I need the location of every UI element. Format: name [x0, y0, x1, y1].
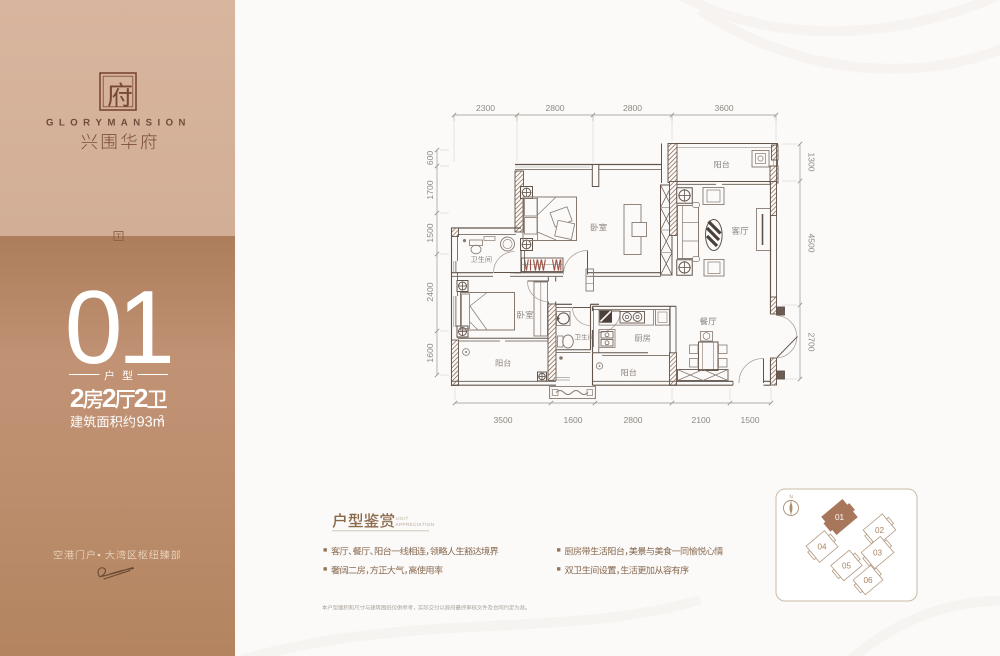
svg-text:3500: 3500	[493, 415, 512, 425]
svg-text:1600: 1600	[563, 415, 582, 425]
svg-text:2700: 2700	[807, 332, 817, 351]
svg-text:1700: 1700	[425, 180, 435, 199]
svg-text:2800: 2800	[545, 103, 564, 113]
svg-text:1500: 1500	[740, 415, 759, 425]
svg-text:05: 05	[842, 562, 852, 571]
svg-text:2800: 2800	[623, 415, 642, 425]
svg-text:1500: 1500	[425, 223, 435, 242]
svg-text:06: 06	[863, 576, 873, 585]
svg-text:2800: 2800	[623, 103, 642, 113]
svg-text:3600: 3600	[714, 103, 733, 113]
svg-text:1300: 1300	[807, 152, 817, 171]
svg-text:600: 600	[425, 151, 435, 166]
svg-text:1600: 1600	[425, 343, 435, 362]
svg-text:2100: 2100	[691, 415, 710, 425]
svg-text:02: 02	[875, 526, 885, 535]
svg-text:4500: 4500	[807, 233, 817, 252]
svg-text:2300: 2300	[476, 103, 495, 113]
svg-text:03: 03	[873, 549, 883, 558]
svg-text:2400: 2400	[425, 282, 435, 301]
svg-text:01: 01	[835, 513, 845, 522]
svg-text:04: 04	[817, 543, 827, 552]
